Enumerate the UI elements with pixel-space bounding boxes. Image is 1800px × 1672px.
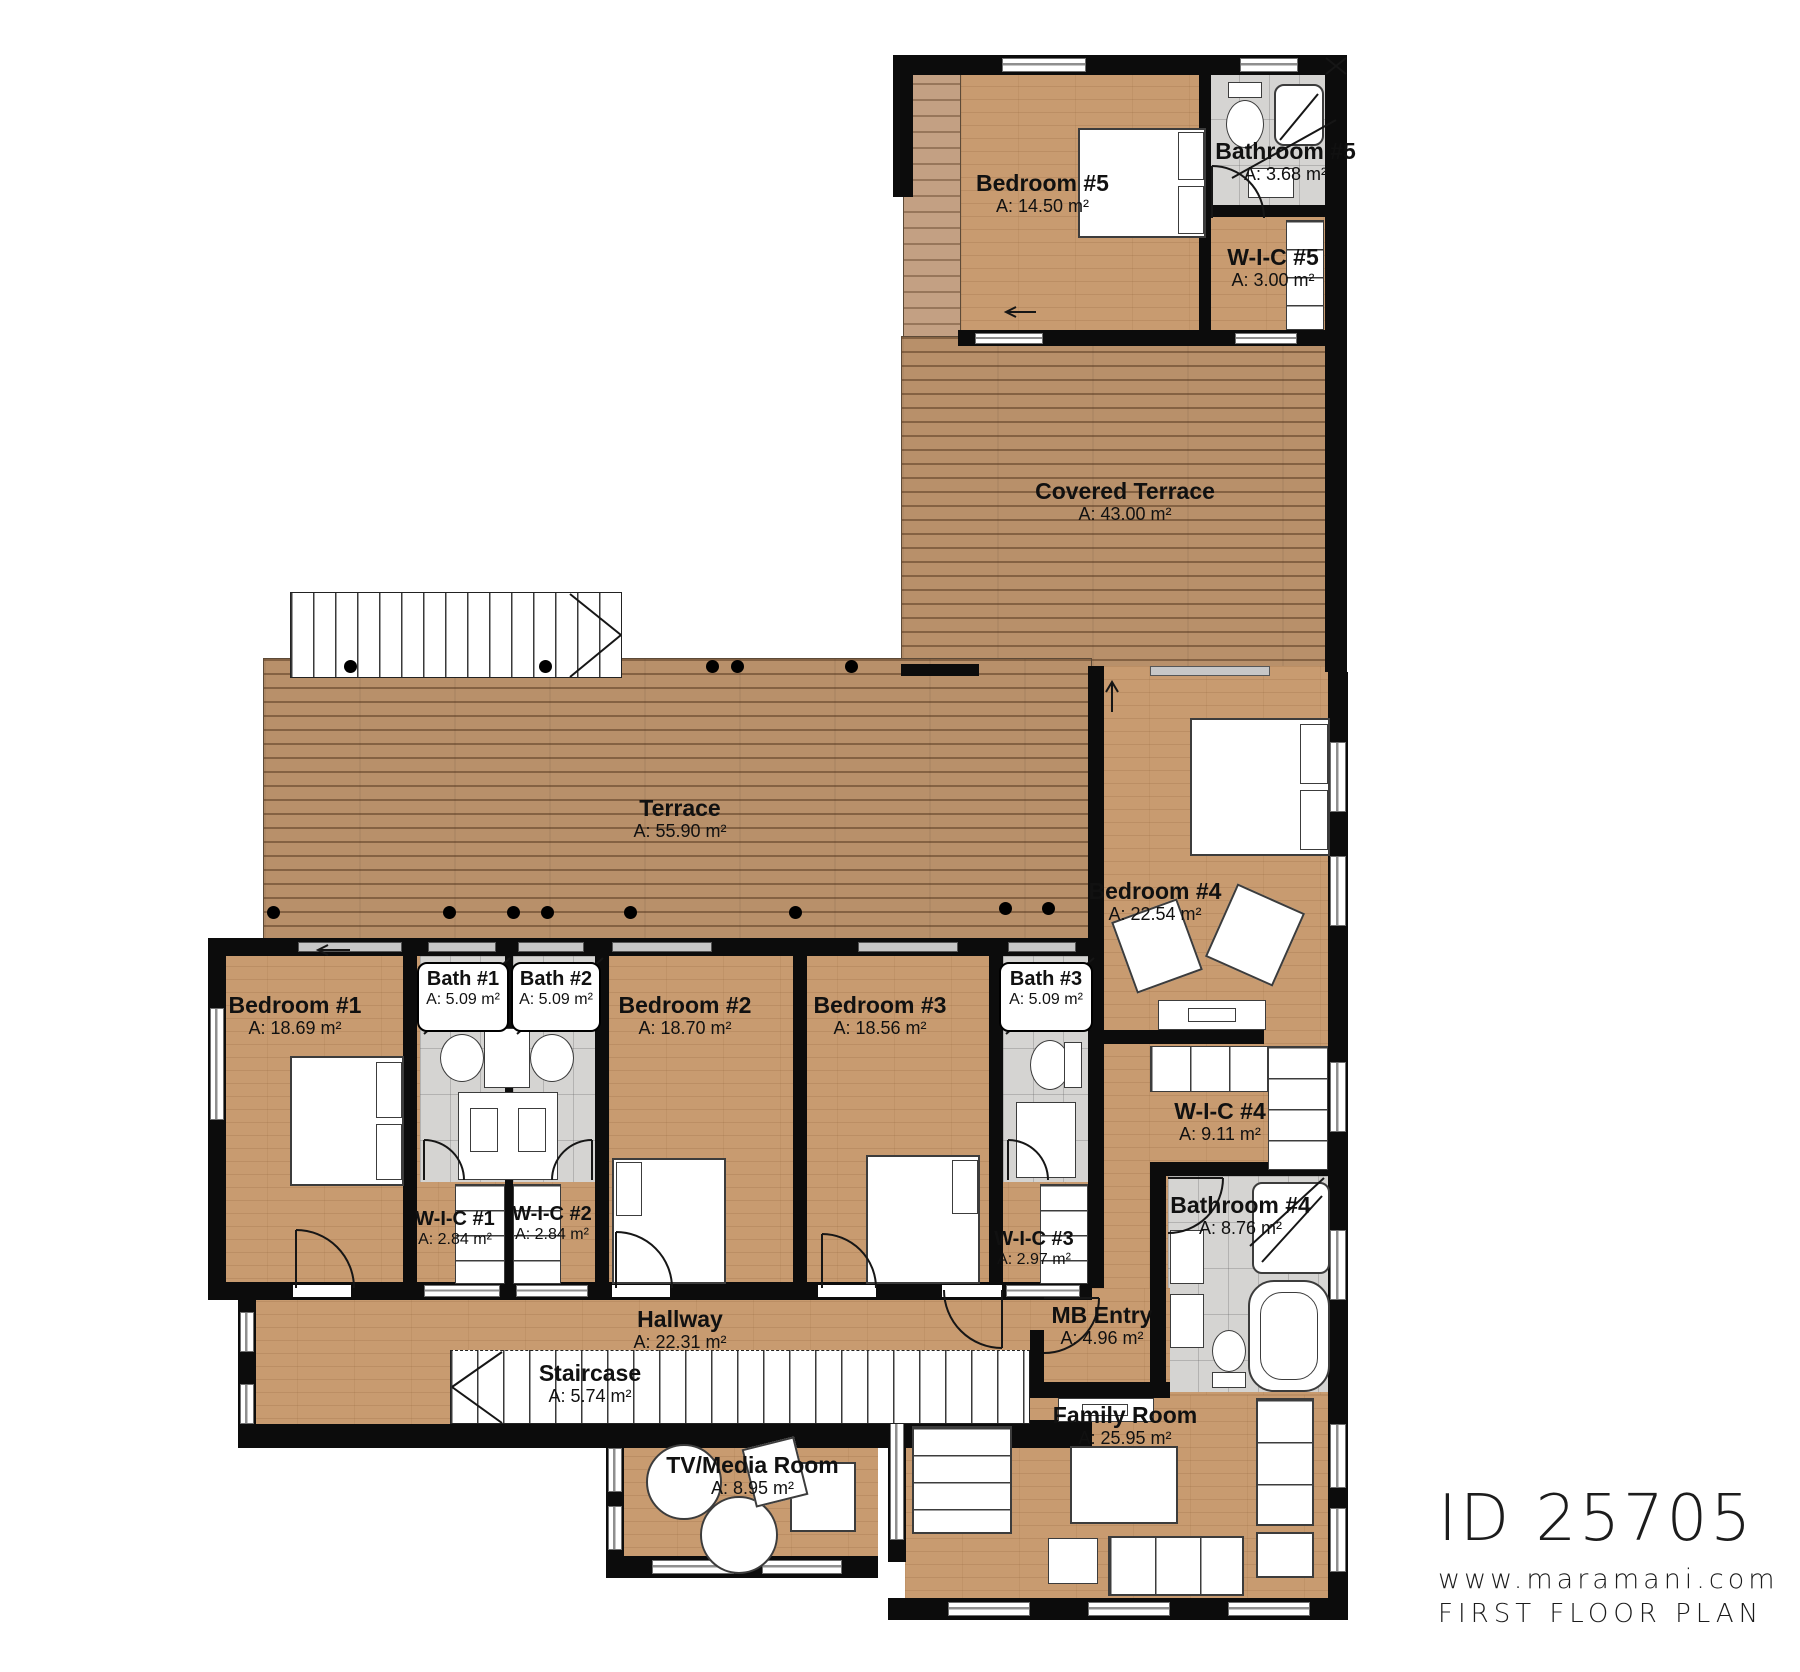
pillow: [376, 1124, 402, 1180]
toilet-icon: [440, 1034, 484, 1082]
window: [424, 1285, 500, 1297]
window: [1330, 1508, 1346, 1572]
window: [1330, 742, 1346, 812]
room-area: A: 9.11 m²: [1130, 1124, 1310, 1145]
room-area: A: 18.56 m²: [785, 1018, 975, 1039]
door-opening: [942, 1285, 1002, 1297]
window: [1006, 1285, 1080, 1297]
window: [1235, 333, 1297, 344]
sliding-door: [518, 942, 584, 952]
wall: [238, 1424, 452, 1448]
door-opening: [293, 1285, 351, 1297]
plan-id: ID 25705: [1438, 1482, 1798, 1556]
room-label-bath-2: Bath #2 A: 5.09 m²: [511, 962, 601, 1032]
window: [1330, 1062, 1346, 1132]
room-label-bedroom-2: Bedroom #2 A: 18.70 m²: [590, 992, 780, 1039]
floor-plan: Bedroom #5 A: 14.50 m² Bathroom #5 A: 3.…: [0, 0, 1800, 1672]
room-area: A: 18.69 m²: [200, 1018, 390, 1039]
window: [890, 1420, 904, 1540]
toilet-tank: [1212, 1372, 1246, 1388]
room-area: A: 22.54 m²: [1060, 904, 1250, 925]
room-name: Bath #1: [419, 968, 507, 991]
sliding-door: [298, 942, 402, 952]
round-table: [700, 1496, 778, 1574]
room-label-tv-media-room: TV/Media Room A: 8.95 m²: [645, 1452, 860, 1499]
window: [1088, 1602, 1170, 1616]
room-name: Bedroom #3: [785, 992, 975, 1018]
sectional-corner: [1256, 1532, 1314, 1578]
vanity: [1016, 1102, 1076, 1178]
room-name: Bedroom #4: [1060, 878, 1250, 904]
room-area: A: 14.50 m²: [940, 196, 1145, 217]
window-seat-sofa: [912, 1426, 1012, 1534]
terrace-post: [624, 906, 637, 919]
pillow: [952, 1160, 978, 1214]
room-name: Family Room: [1020, 1402, 1230, 1428]
window: [240, 1312, 254, 1352]
room-area: A: 8.76 m²: [1148, 1218, 1333, 1239]
room-area: A: 5.09 m²: [513, 991, 599, 1009]
sliding-door: [1008, 942, 1076, 952]
terrace-post: [706, 660, 719, 673]
room-area: A: 55.90 m²: [580, 821, 780, 842]
sliding-door: [858, 942, 958, 952]
room-area: A: 22.31 m²: [580, 1332, 780, 1353]
window: [762, 1560, 842, 1574]
dresser-handle: [1188, 1008, 1236, 1022]
door-opening: [612, 1285, 670, 1297]
wall: [1104, 1030, 1264, 1044]
room-name: W-I-C #5: [1188, 244, 1358, 270]
room-name: W-I-C #3: [978, 1228, 1090, 1251]
room-label-covered-terrace: Covered Terrace A: 43.00 m²: [1000, 478, 1250, 525]
window: [1330, 856, 1346, 926]
room-name: W-I-C #1: [400, 1208, 510, 1231]
room-area: A: 5.74 m²: [490, 1386, 690, 1407]
window: [240, 1384, 254, 1424]
room-label-wic-1: W-I-C #1 A: 2.84 m²: [400, 1208, 510, 1249]
room-label-bedroom-3: Bedroom #3 A: 18.56 m²: [785, 992, 975, 1039]
toilet-tank: [484, 1028, 530, 1088]
room-label-bathroom-5: Bathroom #5 A: 3.68 m²: [1198, 138, 1373, 185]
room-area: A: 2.84 m²: [400, 1231, 510, 1249]
website-url: www.maramani.com: [1438, 1564, 1798, 1595]
sliding-door: [612, 942, 712, 952]
sofa: [1108, 1536, 1244, 1596]
room-label-hallway: Hallway A: 22.31 m²: [580, 1306, 780, 1353]
sliding-door: [1150, 666, 1270, 676]
terrace-post: [789, 906, 802, 919]
pillow: [616, 1162, 642, 1216]
room-label-bath-3: Bath #3 A: 5.09 m²: [999, 962, 1093, 1032]
room-name: Covered Terrace: [1000, 478, 1250, 504]
room-name: MB Entry: [1012, 1302, 1192, 1328]
room-name: Bath #2: [513, 968, 599, 991]
room-area: A: 2.84 m²: [497, 1226, 607, 1244]
room-name: Bathroom #4: [1148, 1192, 1333, 1218]
pillow: [1178, 186, 1204, 234]
room-label-wic-5: W-I-C #5 A: 3.00 m²: [1188, 244, 1358, 291]
room-area: A: 25.95 m²: [1020, 1428, 1230, 1449]
vanity-sink: [518, 1108, 546, 1152]
terrace-post: [1042, 902, 1055, 915]
room-label-bedroom-1: Bedroom #1 A: 18.69 m²: [200, 992, 390, 1039]
room-area: A: 4.96 m²: [1012, 1328, 1192, 1349]
wall: [901, 664, 979, 676]
room-label-bathroom-4: Bathroom #4 A: 8.76 m²: [1148, 1192, 1333, 1239]
sliding-door: [428, 942, 496, 952]
pillow: [1300, 790, 1328, 850]
window: [608, 1448, 622, 1492]
terrace-post: [999, 902, 1012, 915]
pillow: [1300, 724, 1328, 784]
room-label-staircase: Staircase A: 5.74 m²: [490, 1360, 690, 1407]
pillow: [376, 1062, 402, 1118]
plan-title: FIRST FLOOR PLAN: [1438, 1599, 1798, 1629]
title-block: ID 25705 www.maramani.com FIRST FLOOR PL…: [1438, 1482, 1798, 1629]
toilet-icon: [1212, 1330, 1246, 1372]
terrace-post: [541, 906, 554, 919]
room-name: Bedroom #1: [200, 992, 390, 1018]
room-name: Terrace: [580, 795, 780, 821]
terrace-post: [731, 660, 744, 673]
window: [1228, 1602, 1310, 1616]
room-name: Bath #3: [1001, 968, 1091, 991]
terrace-post: [344, 660, 357, 673]
wall: [1030, 1382, 1170, 1398]
window: [608, 1506, 622, 1550]
room-area: A: 3.68 m²: [1198, 164, 1373, 185]
window: [516, 1285, 588, 1297]
room-name: Bedroom #5: [940, 170, 1145, 196]
side-table: [1048, 1538, 1098, 1584]
room-area: A: 3.00 m²: [1188, 270, 1358, 291]
shower-icon: [1274, 84, 1324, 146]
terrace-post: [267, 906, 280, 919]
window: [975, 333, 1043, 344]
room-label-wic-4: W-I-C #4 A: 9.11 m²: [1130, 1098, 1310, 1145]
toilet-icon: [530, 1034, 574, 1082]
room-label-bath-1: Bath #1 A: 5.09 m²: [417, 962, 509, 1032]
room-area: A: 43.00 m²: [1000, 504, 1250, 525]
room-name: W-I-C #4: [1130, 1098, 1310, 1124]
room-label-bedroom-5: Bedroom #5 A: 14.50 m²: [940, 170, 1145, 217]
room-label-bedroom-4: Bedroom #4 A: 22.54 m²: [1060, 878, 1250, 925]
wall: [893, 55, 913, 197]
window: [1330, 1230, 1346, 1300]
room-name: Bedroom #2: [590, 992, 780, 1018]
toilet-tank: [1064, 1042, 1082, 1088]
room-label-family-room: Family Room A: 25.95 m²: [1020, 1402, 1230, 1449]
bathtub-inner: [1260, 1292, 1318, 1380]
exterior-staircase: [290, 592, 622, 678]
window: [1002, 58, 1086, 72]
toilet-tank: [1228, 82, 1262, 98]
room-name: Staircase: [490, 1360, 690, 1386]
room-name: TV/Media Room: [645, 1452, 860, 1478]
sectional-sofa: [1256, 1398, 1314, 1526]
door-opening: [818, 1285, 876, 1297]
terrace-post: [443, 906, 456, 919]
room-label-mb-entry: MB Entry A: 4.96 m²: [1012, 1302, 1192, 1349]
room-name: Bathroom #5: [1198, 138, 1373, 164]
room-label-wic-2: W-I-C #2 A: 2.84 m²: [497, 1203, 607, 1244]
room-area: A: 18.70 m²: [590, 1018, 780, 1039]
room-area: A: 5.09 m²: [419, 991, 507, 1009]
room-area: A: 2.97 m²: [978, 1251, 1090, 1269]
room-name: Hallway: [580, 1306, 780, 1332]
coffee-table: [1070, 1446, 1178, 1524]
closet-shelves: [1150, 1046, 1268, 1092]
room-area: A: 8.95 m²: [645, 1478, 860, 1499]
window: [1240, 58, 1298, 72]
room-label-terrace: Terrace A: 55.90 m²: [580, 795, 780, 842]
vanity-sink: [470, 1108, 498, 1152]
terrace-post: [539, 660, 552, 673]
room-label-wic-3: W-I-C #3 A: 2.97 m²: [978, 1228, 1090, 1269]
terrace-post: [845, 660, 858, 673]
window: [1330, 1424, 1346, 1488]
room-area: A: 5.09 m²: [1001, 991, 1091, 1009]
wall: [1209, 205, 1325, 217]
window: [948, 1602, 1030, 1616]
room-name: W-I-C #2: [497, 1203, 607, 1226]
terrace-post: [507, 906, 520, 919]
